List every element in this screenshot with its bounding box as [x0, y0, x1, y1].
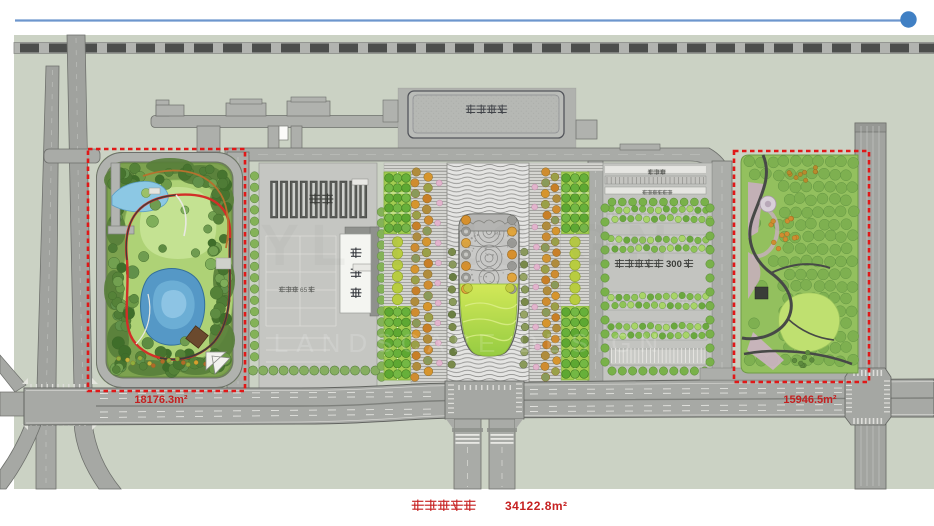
svg-text:15946.5m²: 15946.5m²: [783, 394, 837, 406]
svg-text:65: 65: [300, 287, 308, 294]
svg-text:LANDSCAPE DESIGN: LANDSCAPE DESIGN: [274, 328, 666, 358]
svg-text:34122.8m²: 34122.8m²: [505, 499, 568, 513]
svg-text:YL DESIGN: YL DESIGN: [260, 213, 680, 278]
svg-text:18176.3m²: 18176.3m²: [134, 394, 188, 406]
